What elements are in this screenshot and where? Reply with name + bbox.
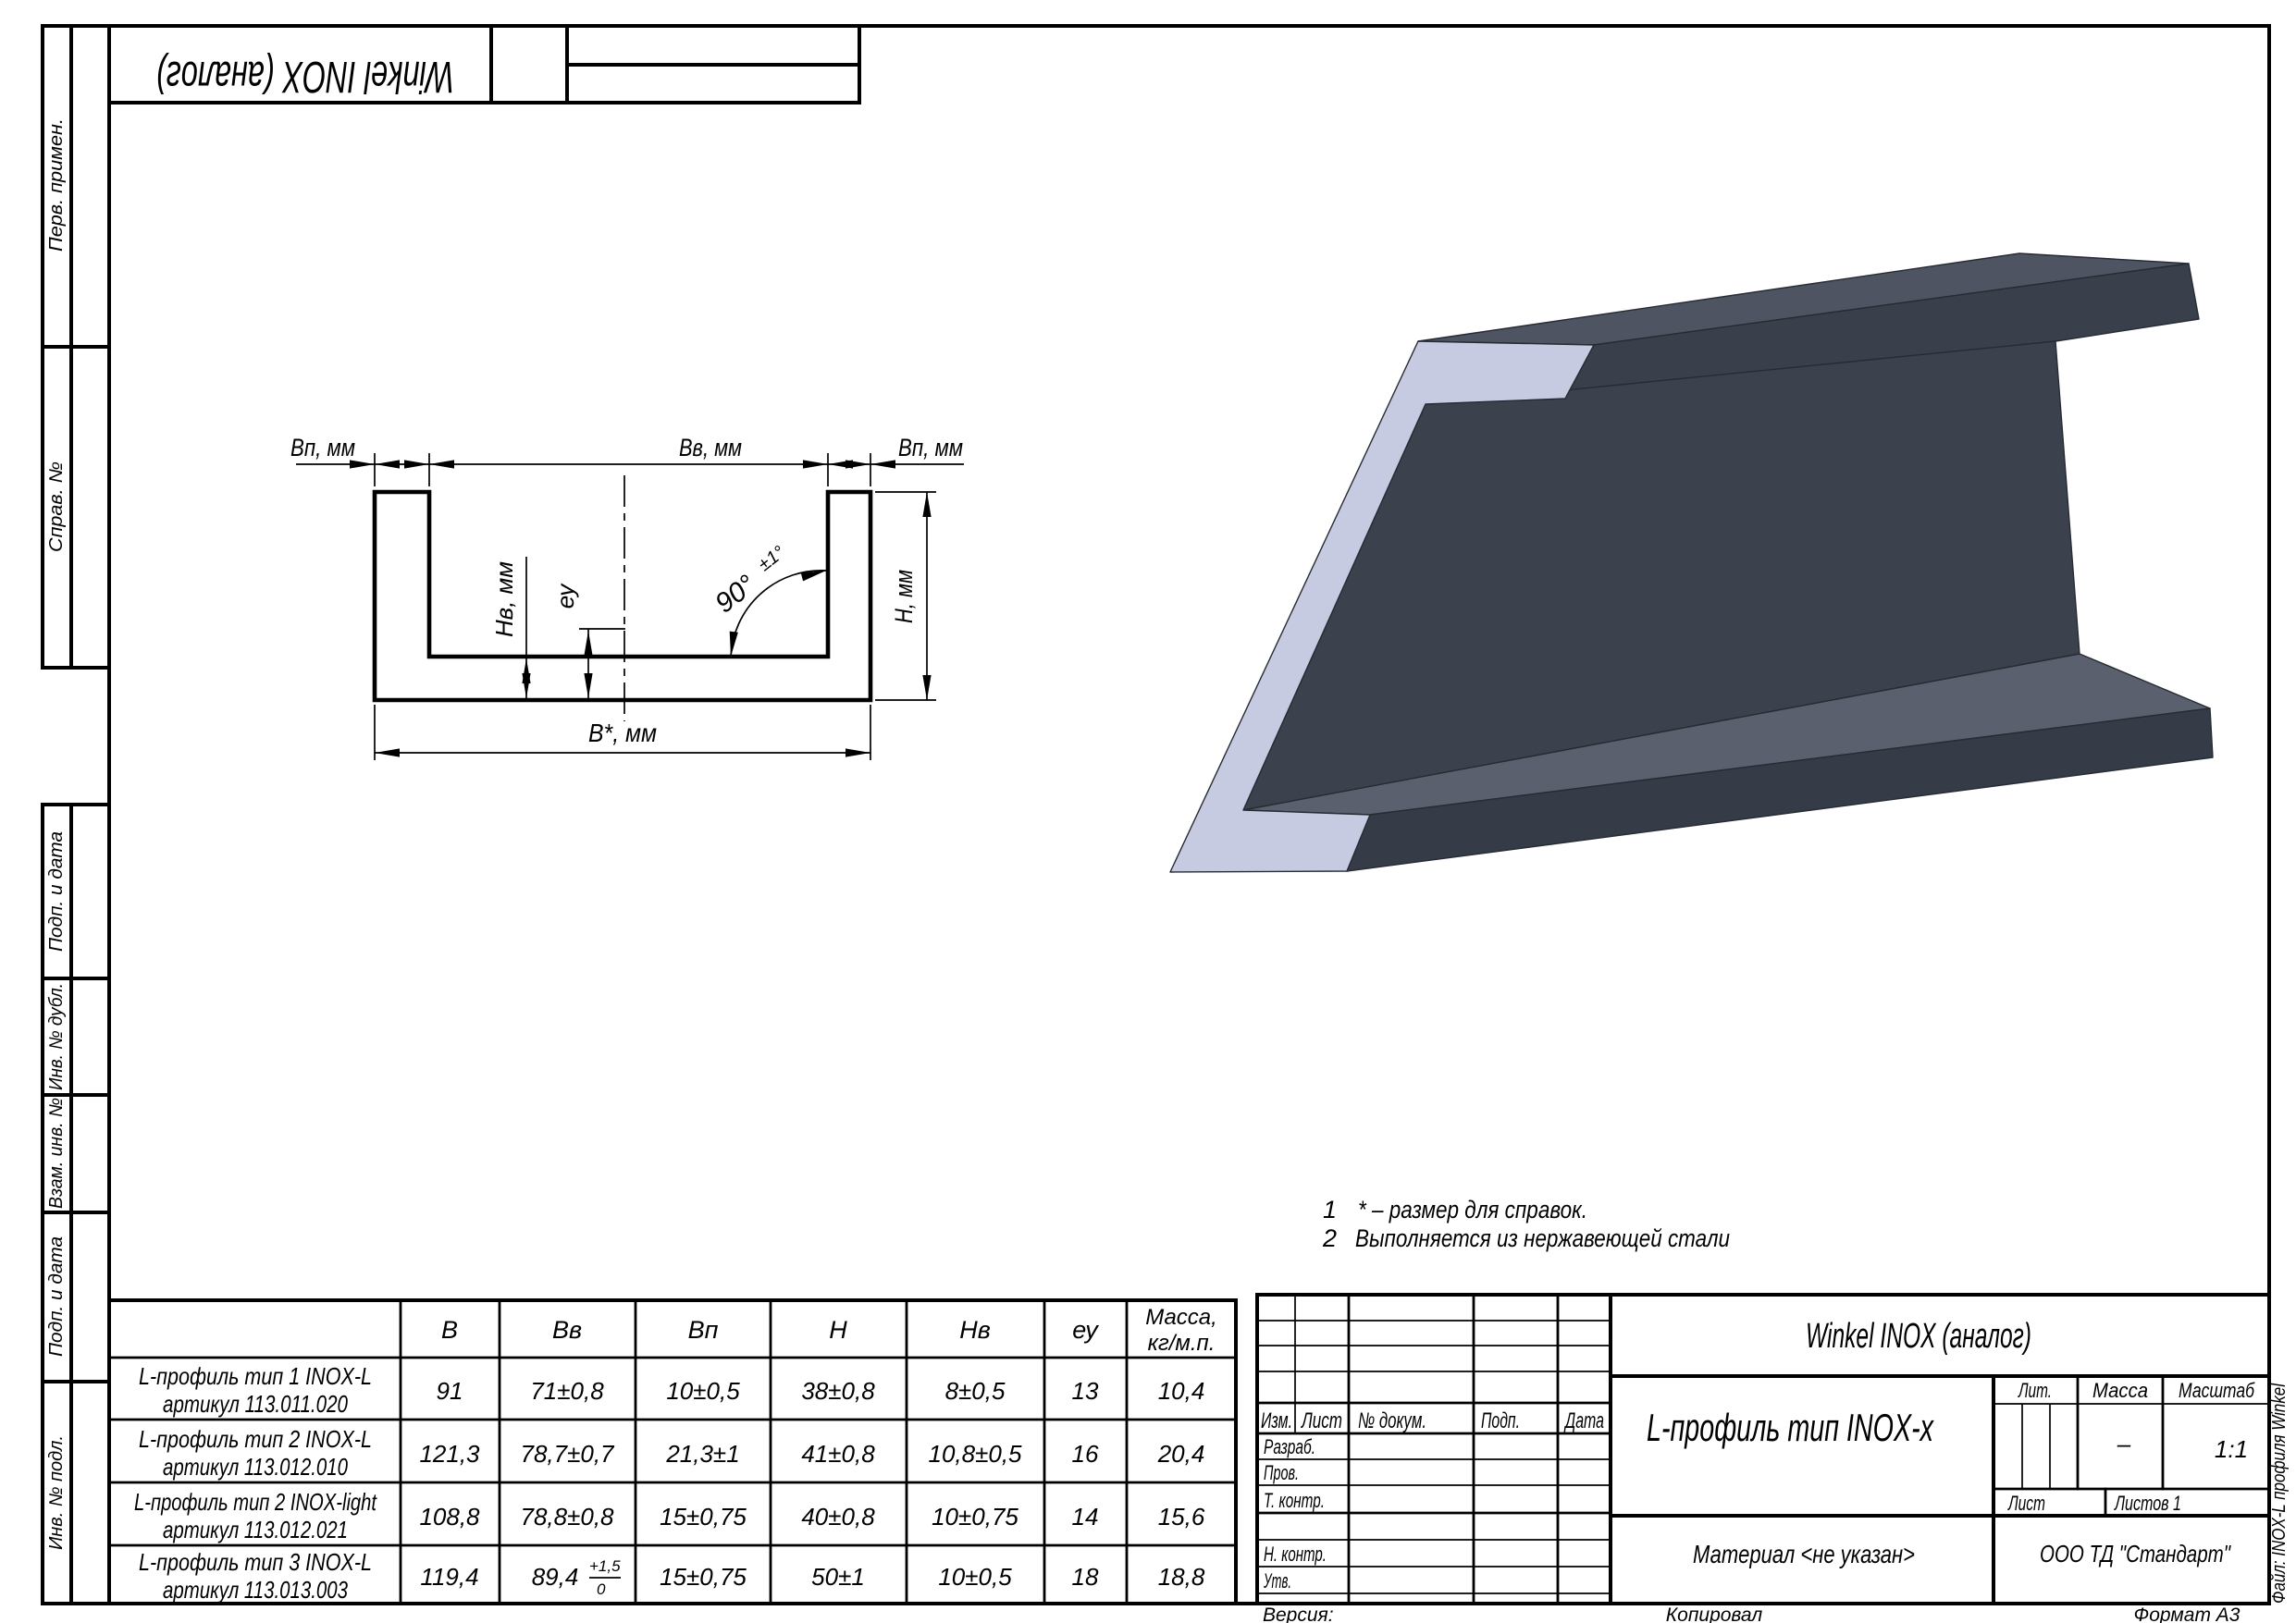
svg-text:10±0,75: 10±0,75 <box>932 1503 1018 1531</box>
svg-text:78,7±0,7: 78,7±0,7 <box>520 1440 615 1468</box>
svg-text:В: В <box>441 1316 458 1344</box>
svg-text:Пров.: Пров. <box>1264 1461 1299 1484</box>
svg-text:78,8±0,8: 78,8±0,8 <box>520 1503 614 1531</box>
svg-text:15±0,75: 15±0,75 <box>660 1503 747 1531</box>
svg-text:Вв: Вв <box>552 1316 582 1344</box>
svg-text:Нв, мм: Нв, мм <box>490 561 518 637</box>
svg-text:1: 1 <box>1323 1196 1337 1223</box>
svg-text:Winkel INOX (аналог): Winkel INOX (аналог) <box>1806 1317 2031 1356</box>
svg-text:14: 14 <box>1072 1503 1099 1531</box>
svg-text:Материал <не указан>: Материал <не указан> <box>1693 1540 1915 1568</box>
svg-text:Копировал: Копировал <box>1666 1605 1763 1623</box>
svg-text:13: 13 <box>1072 1377 1099 1405</box>
svg-text:ООО ТД "Стандарт": ООО ТД "Стандарт" <box>2040 1540 2231 1568</box>
svg-text:20,4: 20,4 <box>1157 1440 1205 1468</box>
svg-text:Вп: Вп <box>688 1316 719 1344</box>
svg-text:Winkel INOX (аналог): Winkel INOX (аналог) <box>156 52 454 101</box>
svg-text:Утв.: Утв. <box>1263 1569 1291 1592</box>
svg-text:8±0,5: 8±0,5 <box>945 1377 1006 1405</box>
svg-text:Лит.: Лит. <box>2018 1379 2052 1402</box>
svg-text:артикул 113.012.010: артикул 113.012.010 <box>163 1453 348 1481</box>
svg-text:Лист: Лист <box>1301 1408 1342 1433</box>
svg-text:артикул 113.013.003: артикул 113.013.003 <box>163 1576 348 1604</box>
svg-text:L-профиль тип 1 INOX-L: L-профиль тип 1 INOX-L <box>139 1362 372 1390</box>
svg-text:21,3±1: 21,3±1 <box>665 1440 739 1468</box>
svg-text:№ докум.: № докум. <box>1358 1408 1426 1433</box>
svg-text:кг/м.п.: кг/м.п. <box>1148 1331 1216 1356</box>
svg-text:10±0,5: 10±0,5 <box>938 1563 1012 1591</box>
svg-text:Подп. и дата: Подп. и дата <box>46 1236 67 1357</box>
svg-text:Изм.: Изм. <box>1261 1408 1292 1433</box>
svg-text:121,3: 121,3 <box>419 1440 480 1468</box>
svg-text:Подп. и дата: Подп. и дата <box>46 831 67 952</box>
svg-text:16: 16 <box>1072 1440 1099 1468</box>
svg-text:Разраб.: Разраб. <box>1264 1435 1315 1458</box>
svg-text:Масштаб: Масштаб <box>2179 1379 2255 1402</box>
svg-text:Листов 1: Листов 1 <box>2114 1492 2181 1515</box>
svg-text:Взам. инв. №: Взам. инв. № <box>46 1098 67 1209</box>
svg-text:Дата: Дата <box>1563 1408 1604 1433</box>
svg-text:Формат А3: Формат А3 <box>2134 1605 2240 1623</box>
svg-text:2: 2 <box>1322 1224 1337 1252</box>
svg-text:15,6: 15,6 <box>1158 1503 1205 1531</box>
svg-text:Выполняется из нержавеющей ста: Выполняется из нержавеющей стали <box>1355 1224 1730 1252</box>
svg-text:Н. контр.: Н. контр. <box>1264 1543 1327 1566</box>
svg-text:L-профиль тип 2 INOX-L: L-профиль тип 2 INOX-L <box>139 1425 372 1453</box>
svg-text:Н: Н <box>829 1316 847 1344</box>
svg-text:Вв, мм: Вв, мм <box>679 434 742 461</box>
svg-text:Лист: Лист <box>2007 1492 2045 1515</box>
svg-text:10±0,5: 10±0,5 <box>666 1377 740 1405</box>
svg-text:В*, мм: В*, мм <box>588 719 657 747</box>
svg-text:Масса: Масса <box>2092 1379 2148 1402</box>
svg-text:–: – <box>2117 1430 2131 1457</box>
svg-text:108,8: 108,8 <box>419 1503 480 1531</box>
svg-text:18: 18 <box>1072 1563 1099 1591</box>
svg-text:41±0,8: 41±0,8 <box>801 1440 875 1468</box>
svg-text:Т. контр.: Т. контр. <box>1264 1489 1325 1512</box>
svg-text:71±0,8: 71±0,8 <box>530 1377 604 1405</box>
svg-text:еу: еу <box>551 583 579 609</box>
svg-text:0: 0 <box>597 1580 606 1598</box>
svg-text:38±0,8: 38±0,8 <box>801 1377 875 1405</box>
svg-text:1:1: 1:1 <box>2215 1435 2248 1463</box>
svg-text:Инв. № дубл.: Инв. № дубл. <box>46 983 67 1090</box>
svg-text:Версия:: Версия: <box>1263 1605 1334 1623</box>
svg-text:Нв: Нв <box>959 1316 991 1344</box>
svg-text:* – размер для справок.: * – размер для справок. <box>1358 1196 1587 1223</box>
svg-text:L-профиль тип 3 INOX-L: L-профиль тип 3 INOX-L <box>139 1548 372 1576</box>
svg-text:Подп.: Подп. <box>1481 1408 1520 1433</box>
svg-text:+1,5: +1,5 <box>589 1557 621 1575</box>
svg-text:артикул 113.011.020: артикул 113.011.020 <box>163 1390 348 1418</box>
svg-text:119,4: 119,4 <box>420 1563 478 1591</box>
svg-text:Перв. примен.: Перв. примен. <box>46 118 67 252</box>
svg-text:Инв. № подл.: Инв. № подл. <box>46 1435 67 1550</box>
svg-text:Н, мм: Н, мм <box>890 570 918 623</box>
svg-text:L-профиль тип INOX-x: L-профиль тип INOX-x <box>1647 1406 1934 1449</box>
svg-text:10,8±0,5: 10,8±0,5 <box>928 1440 1022 1468</box>
svg-text:40±0,8: 40±0,8 <box>801 1503 875 1531</box>
svg-text:50±1: 50±1 <box>811 1563 865 1591</box>
svg-text:15±0,75: 15±0,75 <box>660 1563 747 1591</box>
svg-text:18,8: 18,8 <box>1158 1563 1205 1591</box>
svg-text:еу: еу <box>1072 1316 1099 1344</box>
svg-text:L-профиль тип 2 INOX-light: L-профиль тип 2 INOX-light <box>134 1488 377 1516</box>
svg-text:10,4: 10,4 <box>1158 1377 1205 1405</box>
svg-text:Файл: INOX-L профиля Winkel: Файл: INOX-L профиля Winkel <box>2269 1383 2290 1604</box>
svg-text:Масса,: Масса, <box>1145 1305 1217 1330</box>
svg-text:Вп, мм: Вп, мм <box>290 434 355 461</box>
svg-text:артикул 113.012.021: артикул 113.012.021 <box>163 1516 348 1543</box>
svg-text:Вп, мм: Вп, мм <box>898 434 963 461</box>
svg-text:Справ. №: Справ. № <box>46 461 67 552</box>
svg-text:91: 91 <box>437 1377 463 1405</box>
svg-text:89,4: 89,4 <box>532 1563 579 1591</box>
